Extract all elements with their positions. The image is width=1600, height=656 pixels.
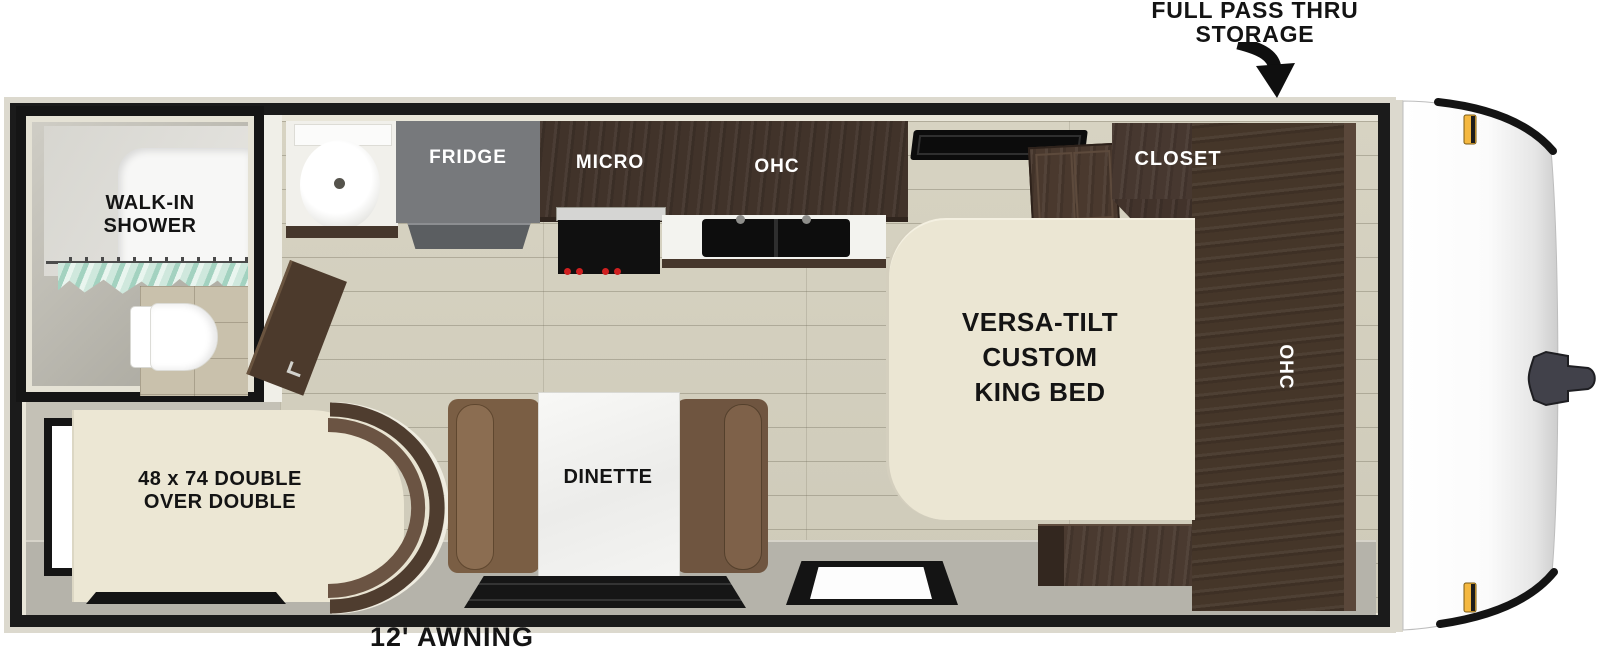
fridge-label: FRIDGE [396,147,540,169]
pass-thru-line1: FULL PASS THRU [1125,0,1385,22]
range-hood [556,207,666,221]
bunk-wood-arcs [300,402,450,614]
hitch-coupler [1529,352,1595,405]
sink-drain [334,178,345,189]
dinette-bench-left [448,399,540,573]
bed-foot-cabinet-side [1038,526,1064,586]
kitchen-double-sink [702,219,850,257]
dinette-label: DINETTE [540,466,676,489]
kitchen-faucet-right [802,215,811,224]
dinette-bench-left-back [456,404,494,570]
bedside-cabinet-door-left [1035,152,1076,222]
closet-label: CLOSET [1108,148,1248,171]
callout-arrow [1232,42,1302,100]
entry-step [464,576,746,608]
dinette-bench-right-back [724,404,762,570]
shower-label-line1: WALK-IN [70,192,230,215]
wardrobe-ohc-label-wrap: OHC [1255,337,1315,397]
kitchen-faucet-left [736,215,745,224]
entry-door [786,561,958,605]
fridge [396,121,540,223]
front-cap [1394,95,1600,640]
stove-knob-2 [576,268,583,275]
entry-door-pane [810,567,932,599]
floorplan-canvas: WALK-IN SHOWER 48 x 74 DOUBLE OVER DOUBL… [0,0,1600,656]
bunk-window-pane [52,426,72,568]
bed-foot-cabinet [1038,524,1192,586]
toilet-bowl [150,303,218,371]
bunk-base-trim [86,592,286,604]
cap-joint-trim [1394,100,1403,632]
walk-in-shower-label: WALK-IN SHOWER [70,192,230,238]
counter-base [662,259,886,268]
awning-label: 12' AWNING [352,622,552,653]
wardrobe-ohc-label: OHC [1255,337,1315,397]
sink-divider [774,219,778,257]
shower-label-line2: SHOWER [70,215,230,238]
micro-label: MICRO [540,152,680,174]
kitchen-ohc-label: OHC [687,156,867,178]
fridge-door-flap [402,223,536,249]
pass-thru-callout: FULL PASS THRU STORAGE [1125,0,1385,46]
wardrobe-edge-highlight [1344,123,1356,611]
king-bed-label-line2: CUSTOM [920,340,1160,375]
king-bed-label: VERSA-TILT CUSTOM KING BED [920,305,1160,410]
stove-knob-3 [602,268,609,275]
bedside-cabinet [1028,143,1120,229]
vanity-base [286,226,398,238]
dinette-bench-right [676,399,768,573]
marker-light-top [1464,115,1476,144]
stove-knob-1 [564,268,571,275]
stove-knob-4 [614,268,621,275]
stove [558,220,660,274]
king-bed-label-line3: KING BED [920,375,1160,410]
king-bed-label-line1: VERSA-TILT [920,305,1160,340]
marker-light-bottom [1464,583,1476,612]
